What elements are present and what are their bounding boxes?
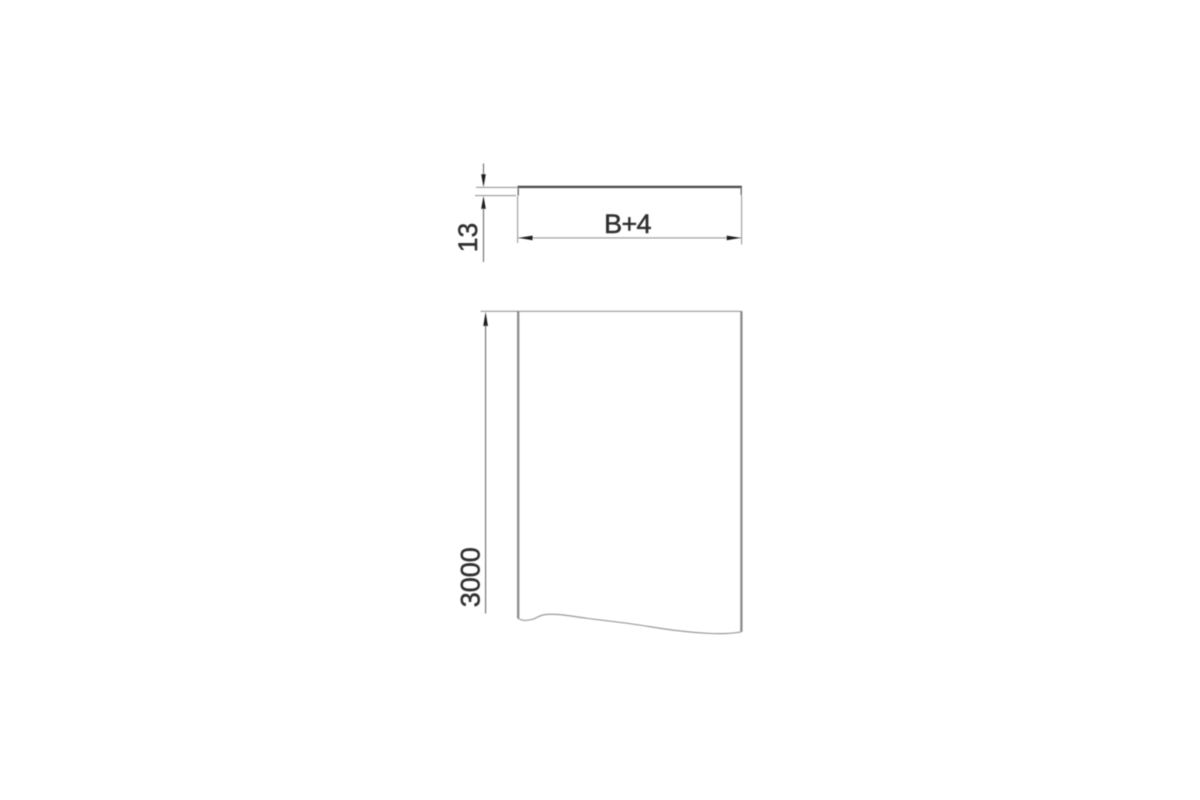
svg-text:13: 13 <box>453 223 483 252</box>
svg-text:3000: 3000 <box>456 547 486 607</box>
svg-text:B+4: B+4 <box>604 209 651 239</box>
